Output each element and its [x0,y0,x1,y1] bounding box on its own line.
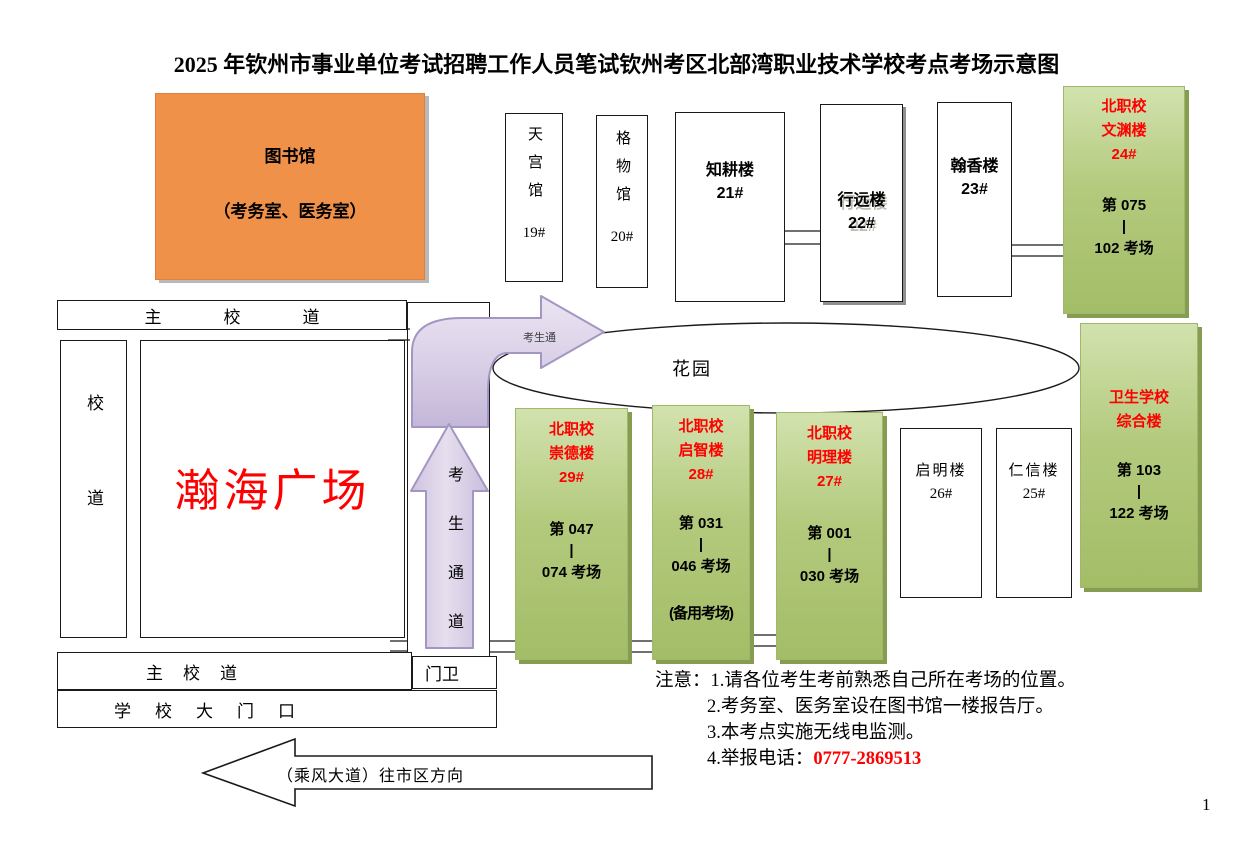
building-xingyuan: 行远楼 22# [820,104,903,302]
building-gewu: 格物馆 20# [596,115,648,288]
note-item-4-prefix: 4.举报电话： [707,749,813,769]
note-item-3: 3.本考点实施无线电监测。 [707,720,1195,746]
building-tiangong-name: 天宫馆 [522,126,546,210]
mingli-name: 明理楼 [807,446,852,470]
main-road-bottom: 主校道 [57,652,412,690]
qizhi-room-sep: | [699,536,703,554]
building-qiming: 启明楼 26# [900,428,982,598]
exam-building-weisheng: 卫生学校 综合楼 第 103 | 122 考场 [1080,323,1198,588]
exam-building-qizhi: 北职校 启智楼 28# 第 031 | 046 考场 (备用考场) [652,405,750,660]
plaza: 瀚海广场 [140,340,405,638]
wenyuan-school: 北职校 [1101,95,1146,119]
page-number: 1 [1202,795,1211,815]
wenyuan-room-to: 102 考场 [1094,236,1153,261]
page-title: 2025 年钦州市事业单位考试招聘工作人员笔试钦州考区北部湾职业技术学校考点考场… [0,47,1233,79]
qizhi-number: 28# [688,463,713,487]
plaza-label: 瀚海广场 [174,454,370,519]
building-qiming-name: 启明楼 [915,459,966,483]
weisheng-school: 卫生学校 [1109,386,1169,410]
mingli-room-to: 030 考场 [800,564,859,589]
wenyuan-room-from: 第 075 [1102,193,1146,218]
walkway-vertical-label: 考生通道 [441,466,465,662]
weisheng-name: 综合楼 [1116,410,1161,434]
library-subtitle: （考务室、医务室） [214,197,367,222]
qizhi-room-to: 046 考场 [671,554,730,579]
mingli-number: 27# [817,470,842,494]
chongde-school: 北职校 [549,418,594,442]
wenyuan-name: 文渊楼 [1101,119,1146,143]
note-line-4: 4.举报电话：0777-2869513 [707,746,1195,772]
report-phone-number: 0777-2869513 [813,749,921,769]
school-gate: 学校大门口 [57,690,497,728]
building-renxin: 仁信楼 25# [996,428,1072,598]
building-zhigeng-name: 知耕楼 [706,159,754,183]
qizhi-school: 北职校 [678,415,723,439]
building-xingyuan-number: 22# [848,213,875,235]
library-building: 图书馆 （考务室、医务室） [155,93,425,280]
wenyuan-room-sep: | [1122,218,1126,236]
chongde-name: 崇德楼 [549,442,594,466]
weisheng-room-from: 第 103 [1117,458,1161,483]
qizhi-name: 启智楼 [678,439,723,463]
note-line-1: 注意：1.请各位考生考前熟悉自己所在考场的位置。 [655,668,1195,694]
main-road-top: 主校道 [57,300,407,330]
chongde-room-sep: | [569,542,573,560]
walkway-elbow-label: 考生通 [523,329,556,345]
notes-label: 注意： [655,671,711,691]
qizhi-room-from: 第 031 [679,511,723,536]
building-zhigeng: 知耕楼 21# [675,112,785,302]
exam-building-chongde: 北职校 崇德楼 29# 第 047 | 074 考场 [515,408,628,660]
building-tiangong-number: 19# [523,222,546,244]
building-hanxiang-number: 23# [961,179,988,201]
building-zhigeng-number: 21# [717,183,744,205]
exam-building-mingli: 北职校 明理楼 27# 第 001 | 030 考场 [776,412,883,660]
building-hanxiang: 翰香楼 23# [937,102,1012,297]
qizhi-backup-label: (备用考场) [669,601,733,626]
building-xingyuan-name: 行远楼 [837,189,885,213]
weisheng-room-to: 122 考场 [1109,501,1168,526]
garden-ellipse [493,323,1079,413]
wenyuan-number: 24# [1111,143,1136,167]
building-gewu-name: 格物馆 [610,130,634,214]
main-road-bottom-label: 主校道 [146,659,257,684]
notes-block: 注意：1.请各位考生考前熟悉自己所在考场的位置。 2.考务室、医务室设在图书馆一… [655,668,1195,772]
library-name: 图书馆 [265,142,316,167]
side-road-label: 校道 [81,394,106,584]
side-road: 校道 [60,340,127,638]
chongde-number: 29# [559,466,584,490]
chongde-room-to: 074 考场 [542,560,601,585]
note-item-1: 1.请各位考生考前熟悉自己所在考场的位置。 [711,671,1076,691]
building-renxin-name: 仁信楼 [1008,459,1059,483]
garden-label: 花园 [672,355,712,381]
mingli-room-from: 第 001 [807,521,851,546]
building-tiangong: 天宫馆 19# [505,113,563,282]
guard-post-label: 门卫 [425,660,459,685]
school-gate-label: 学校大门口 [114,697,319,722]
weisheng-room-sep: | [1137,483,1141,501]
exam-site-map: 2025 年钦州市事业单位考试招聘工作人员笔试钦州考区北部湾职业技术学校考点考场… [0,0,1233,842]
exam-building-wenyuan: 北职校 文渊楼 24# 第 075 | 102 考场 [1063,86,1185,314]
mingli-school: 北职校 [807,422,852,446]
building-gewu-number: 20# [611,226,634,248]
building-hanxiang-name: 翰香楼 [950,155,998,179]
mingli-room-sep: | [827,546,831,564]
building-qiming-number: 26# [930,483,953,505]
building-renxin-number: 25# [1023,483,1046,505]
main-road-top-label: 主校道 [145,303,382,328]
chongde-room-from: 第 047 [549,517,593,542]
street-arrow-label: （乘风大道）往市区方向 [277,762,464,786]
note-item-2: 2.考务室、医务室设在图书馆一楼报告厅。 [707,694,1195,720]
